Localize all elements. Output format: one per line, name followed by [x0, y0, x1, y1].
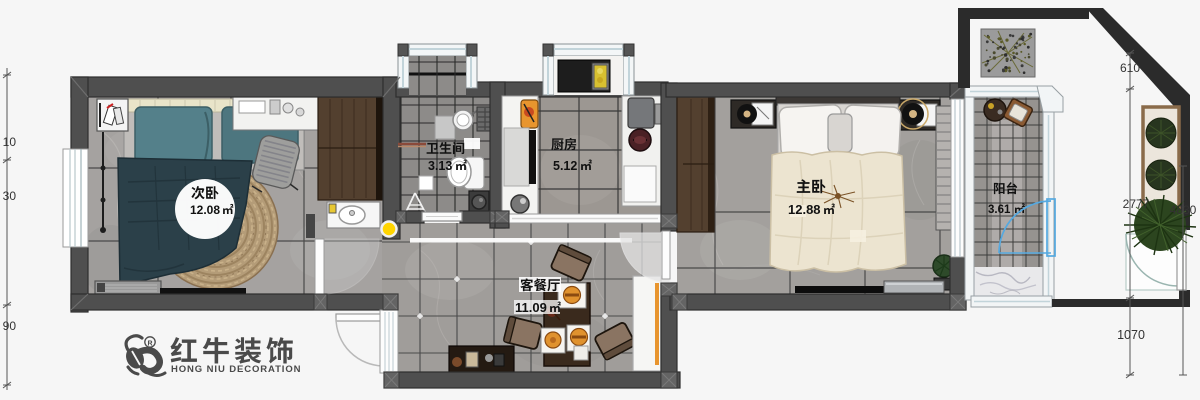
- svg-text:3.61: 3.61: [988, 204, 1011, 216]
- svg-text:10: 10: [3, 135, 17, 149]
- svg-text:11.09: 11.09: [515, 300, 547, 315]
- svg-text:4830: 4830: [1170, 203, 1197, 217]
- svg-text:12.08: 12.08: [190, 203, 220, 217]
- svg-text:R: R: [147, 341, 152, 348]
- svg-text:30: 30: [3, 189, 17, 203]
- svg-text:HONG NIU DECORATION: HONG NIU DECORATION: [171, 364, 301, 375]
- svg-text:1070: 1070: [1117, 328, 1145, 342]
- svg-text:5.12: 5.12: [553, 159, 577, 173]
- svg-text:90: 90: [3, 319, 17, 333]
- svg-text:610: 610: [1120, 61, 1140, 75]
- svg-text:12.88: 12.88: [788, 202, 821, 217]
- svg-text:3.13: 3.13: [428, 159, 452, 173]
- svg-text:2777: 2777: [1123, 197, 1150, 211]
